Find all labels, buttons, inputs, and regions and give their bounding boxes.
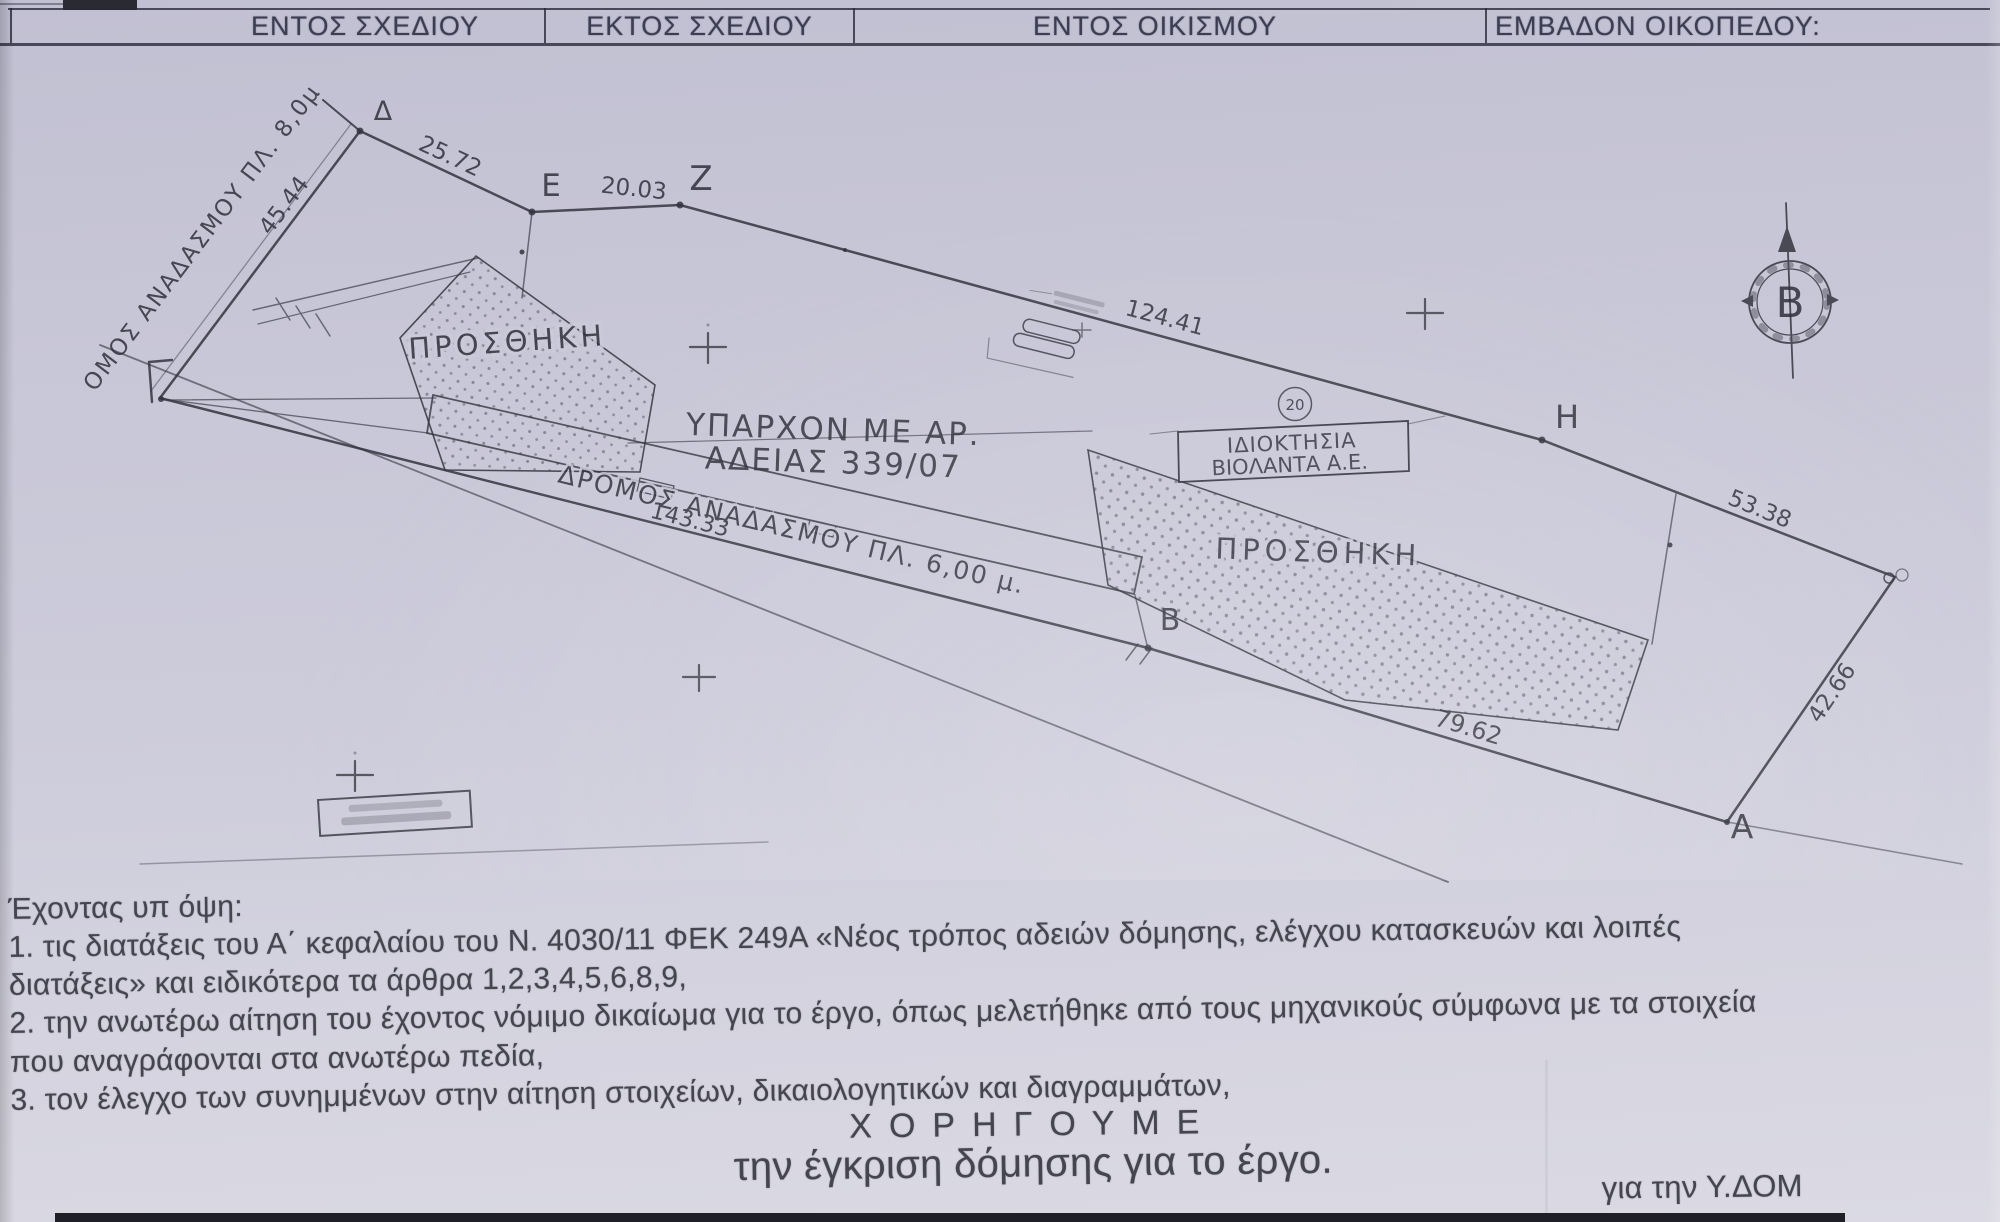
- consideration-item: 1. τις διατάξεις του Α΄ κεφαλαίου του Ν.…: [8, 910, 1681, 964]
- signature-note: για την Υ.ΔΟΜ: [1601, 1168, 1803, 1206]
- intro-line: Έχοντας υπ όψη:: [8, 890, 243, 927]
- grant-text: την έγκριση δόμησης για το έργο.: [603, 1136, 1463, 1192]
- consideration-item: διατάξεις» και ειδικότερα τα άρθρα 1,2,3…: [9, 961, 687, 1003]
- decision-text-block: Έχοντας υπ όψη: 1. τις διατάξεις του Α΄ …: [0, 0, 2000, 1222]
- consideration-item: που αναγράφονται στα ανωτέρω πεδία,: [10, 1039, 545, 1080]
- scanned-permit-document: ΕΝΤΟΣ ΣΧΕΔΙΟΥ ΕΚΤΟΣ ΣΧΕΔΙΟΥ ΕΝΤΟΣ ΟΙΚΙΣΜ…: [0, 0, 2000, 1222]
